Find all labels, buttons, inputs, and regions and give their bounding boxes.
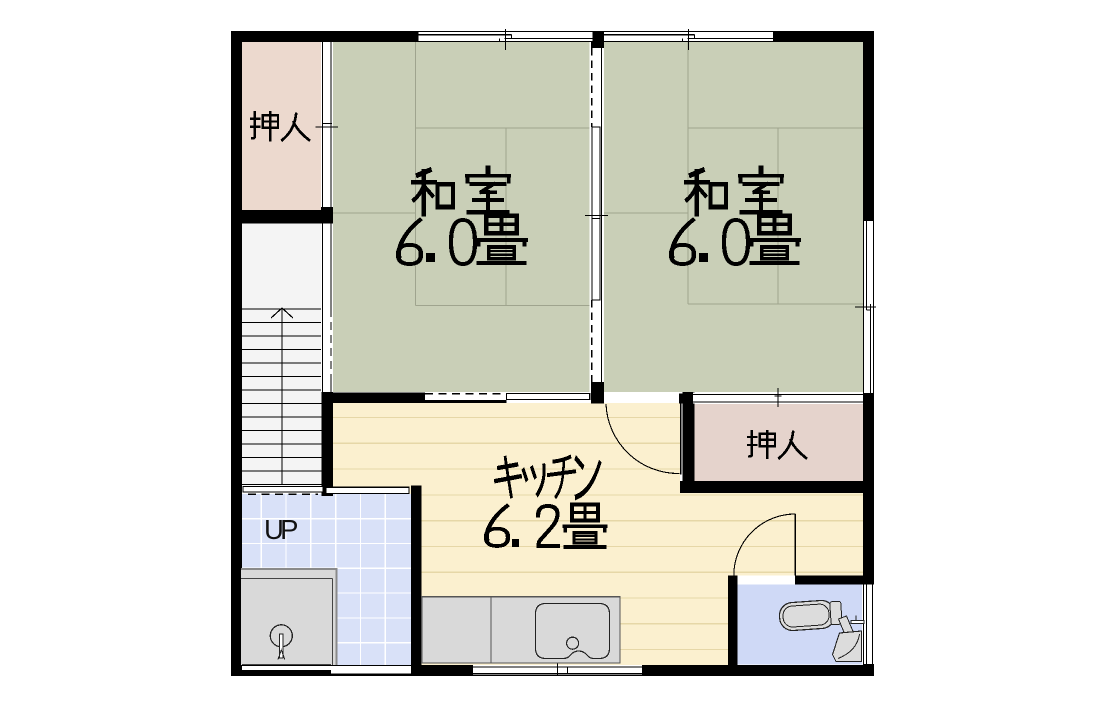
svg-text:UP: UP — [264, 514, 299, 545]
